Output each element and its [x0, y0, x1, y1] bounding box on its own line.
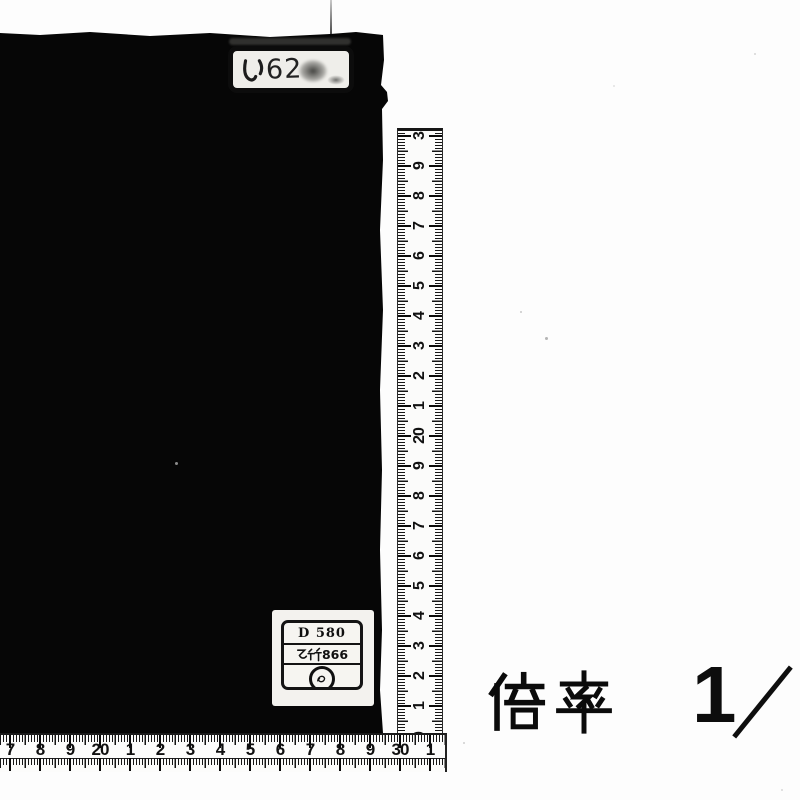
- ruler-number: 1: [412, 395, 428, 417]
- bottom-label: D 580 866: [272, 610, 374, 706]
- ruler-number: 6: [276, 741, 284, 758]
- vertical-ruler-cm-ticks-left: [398, 131, 411, 740]
- speck: [613, 85, 615, 87]
- ruler-number: 7: [412, 515, 428, 537]
- ruler-number: 3: [412, 335, 428, 357]
- speck: [520, 311, 522, 313]
- speck: [463, 742, 465, 744]
- ruler-number: 6: [412, 545, 428, 567]
- ruler-number: 7: [412, 215, 428, 237]
- scan-streak: [229, 38, 351, 45]
- vertical-ruler-cm-ticks-right: [429, 131, 442, 740]
- ruler-number: 4: [412, 305, 428, 327]
- ruler-number: 8: [336, 741, 344, 758]
- ruler-number: 2: [412, 365, 428, 387]
- stamp-circle: [309, 666, 335, 690]
- kanji-bai-glyph: [484, 666, 546, 738]
- hiragana-i-glyph: [240, 56, 264, 84]
- stamp-squiggle: [314, 671, 330, 687]
- ruler-number: 6: [412, 245, 428, 267]
- ruler-number: 9: [66, 741, 74, 758]
- ruler-number: 3: [412, 125, 428, 147]
- ruler-number: 8: [412, 185, 428, 207]
- speck: [781, 789, 783, 791]
- catalog-number: D 580: [298, 626, 346, 641]
- ruler-number: 8: [36, 741, 44, 758]
- scan-speck: [175, 462, 178, 465]
- ruler-number: 9: [412, 455, 428, 477]
- ruler-number: 8: [412, 485, 428, 507]
- ruler-number: 9: [366, 741, 374, 758]
- horizontal-ruler: 78920123456789301: [0, 733, 447, 772]
- ruler-number: 30: [392, 741, 409, 758]
- magnification-numerator: 1: [692, 655, 737, 735]
- ruler-number: 7: [6, 741, 14, 758]
- bottom-label-row2: 866: [284, 645, 360, 665]
- ruler-number: 20: [412, 425, 428, 447]
- ruler-number: 1: [426, 741, 434, 758]
- kanji-otsutake-glyph: [296, 647, 322, 662]
- ruler-number: 1: [412, 695, 428, 717]
- speck: [754, 53, 756, 55]
- caption-bairitsu: 1: [480, 655, 800, 755]
- scanned-page: 62 D 580 866: [0, 0, 800, 800]
- kanji-ritsu-glyph: [553, 666, 615, 738]
- speck: [545, 337, 548, 340]
- ruler-number: 9: [412, 155, 428, 177]
- ruler-number: 2: [412, 665, 428, 687]
- ruler-number: 3: [412, 635, 428, 657]
- ruler-number: 5: [412, 275, 428, 297]
- vertical-ruler: 3987654321209876543210: [397, 128, 443, 740]
- bottom-label-row1: D 580: [284, 623, 360, 645]
- ruler-number: 4: [412, 605, 428, 627]
- fraction-slash: [732, 665, 793, 738]
- horizontal-ruler-cm-ticks-bottom: [0, 758, 445, 771]
- bottom-label-box: D 580 866: [281, 620, 363, 690]
- top-label: 62: [228, 46, 354, 93]
- ruler-number: 1: [126, 741, 134, 758]
- ruler-number: 5: [246, 741, 254, 758]
- ink-smudge-small: [325, 74, 347, 86]
- ruler-number: 4: [216, 741, 224, 758]
- ruler-number: 2: [156, 741, 164, 758]
- ruler-number: 5: [412, 575, 428, 597]
- catalog-subnumber: 866: [322, 647, 348, 662]
- ruler-number: 20: [92, 741, 109, 758]
- registration-mark-line: [330, 0, 332, 34]
- ruler-number: 7: [306, 741, 314, 758]
- ruler-number: 3: [186, 741, 194, 758]
